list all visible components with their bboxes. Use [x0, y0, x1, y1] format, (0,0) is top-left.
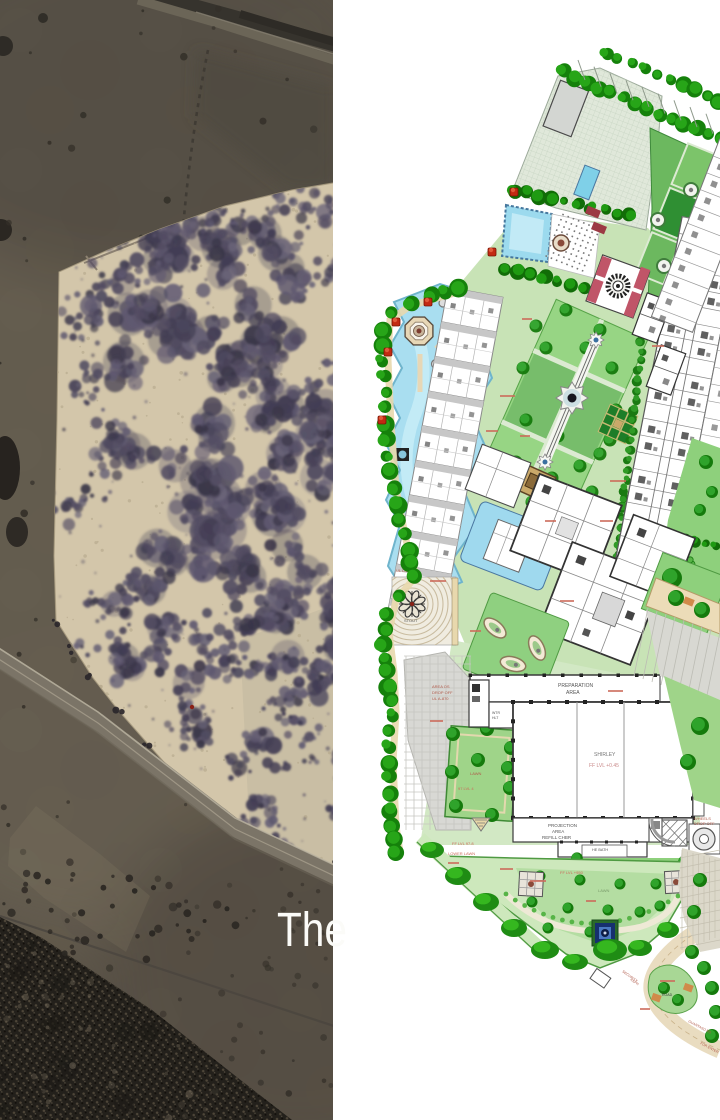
- svg-text:UL A-870: UL A-870: [432, 696, 449, 701]
- svg-text:PREPARATION: PREPARATION: [558, 683, 593, 689]
- svg-text:97 LVL 4: 97 LVL 4: [458, 786, 474, 791]
- svg-text:AREA OS: AREA OS: [432, 684, 450, 689]
- svg-text:SHIRLEY: SHIRLEY: [594, 752, 616, 758]
- svg-text:FF LVL +0.45: FF LVL +0.45: [589, 763, 619, 769]
- svg-text:WTR: WTR: [492, 711, 500, 715]
- svg-text:ROAD: ROAD: [662, 993, 673, 997]
- svg-text:STOUT: STOUT: [404, 618, 418, 623]
- svg-text:AREA: AREA: [552, 829, 564, 834]
- svg-text:REFILL CHBR: REFILL CHBR: [542, 835, 572, 840]
- svg-text:AREA: AREA: [566, 690, 580, 696]
- svg-text:PROJECTION: PROJECTION: [548, 823, 577, 828]
- svg-text:DROP OFF: DROP OFF: [432, 690, 453, 695]
- svg-text:FF LVL 97.8: FF LVL 97.8: [452, 841, 474, 846]
- svg-text:LAWN: LAWN: [470, 771, 482, 776]
- svg-text:DROP OFF: DROP OFF: [694, 821, 715, 826]
- svg-text:The: The: [277, 904, 347, 957]
- svg-text:HE BATH: HE BATH: [592, 848, 608, 852]
- svg-text:FF LVL +950: FF LVL +950: [560, 870, 584, 875]
- svg-text:LOWER LAWN: LOWER LAWN: [448, 851, 475, 856]
- svg-text:LAWN: LAWN: [598, 888, 610, 893]
- svg-text:HLT: HLT: [492, 716, 499, 720]
